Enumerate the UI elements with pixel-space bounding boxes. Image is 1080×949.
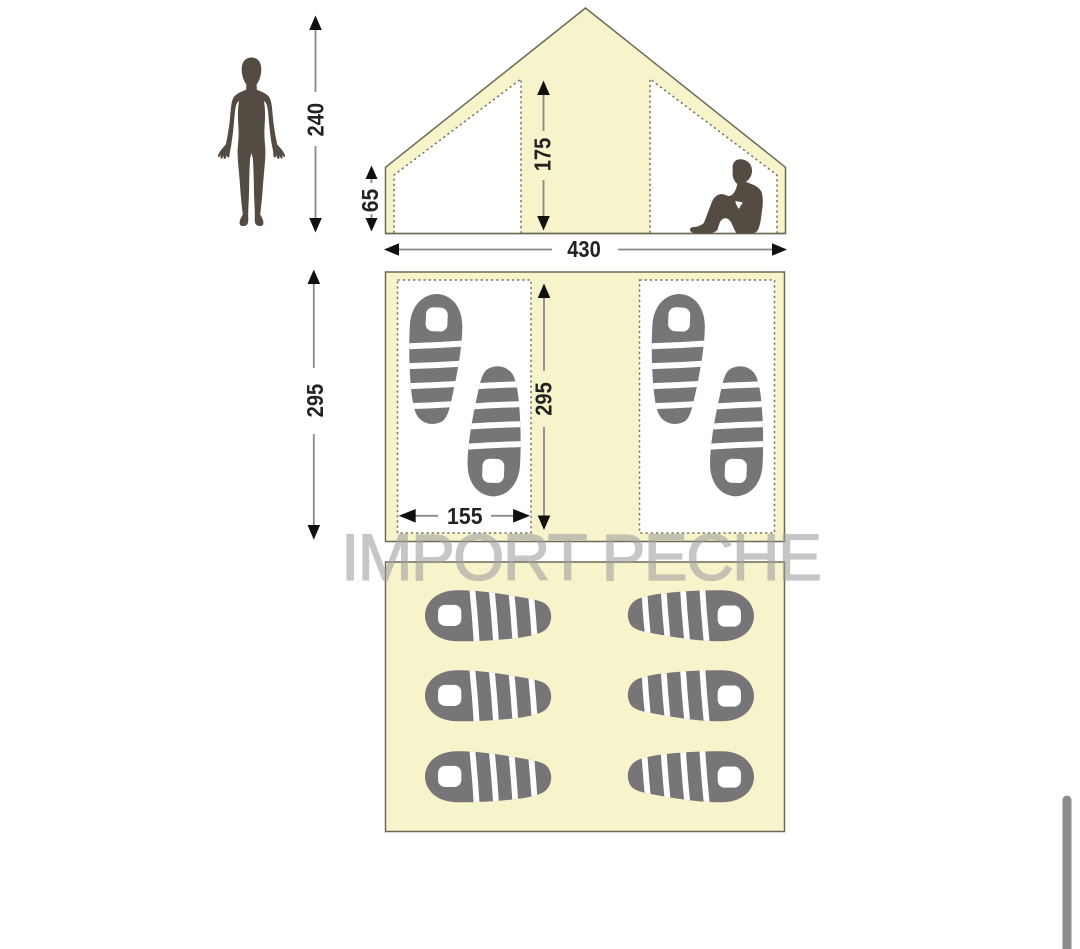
svg-text:295: 295 — [302, 384, 328, 418]
svg-text:65: 65 — [357, 189, 383, 213]
svg-text:430: 430 — [567, 236, 601, 262]
svg-text:295: 295 — [531, 382, 557, 416]
svg-text:IMPORT PECHE: IMPORT PECHE — [341, 520, 822, 594]
svg-text:240: 240 — [303, 103, 329, 137]
svg-text:175: 175 — [530, 138, 556, 172]
